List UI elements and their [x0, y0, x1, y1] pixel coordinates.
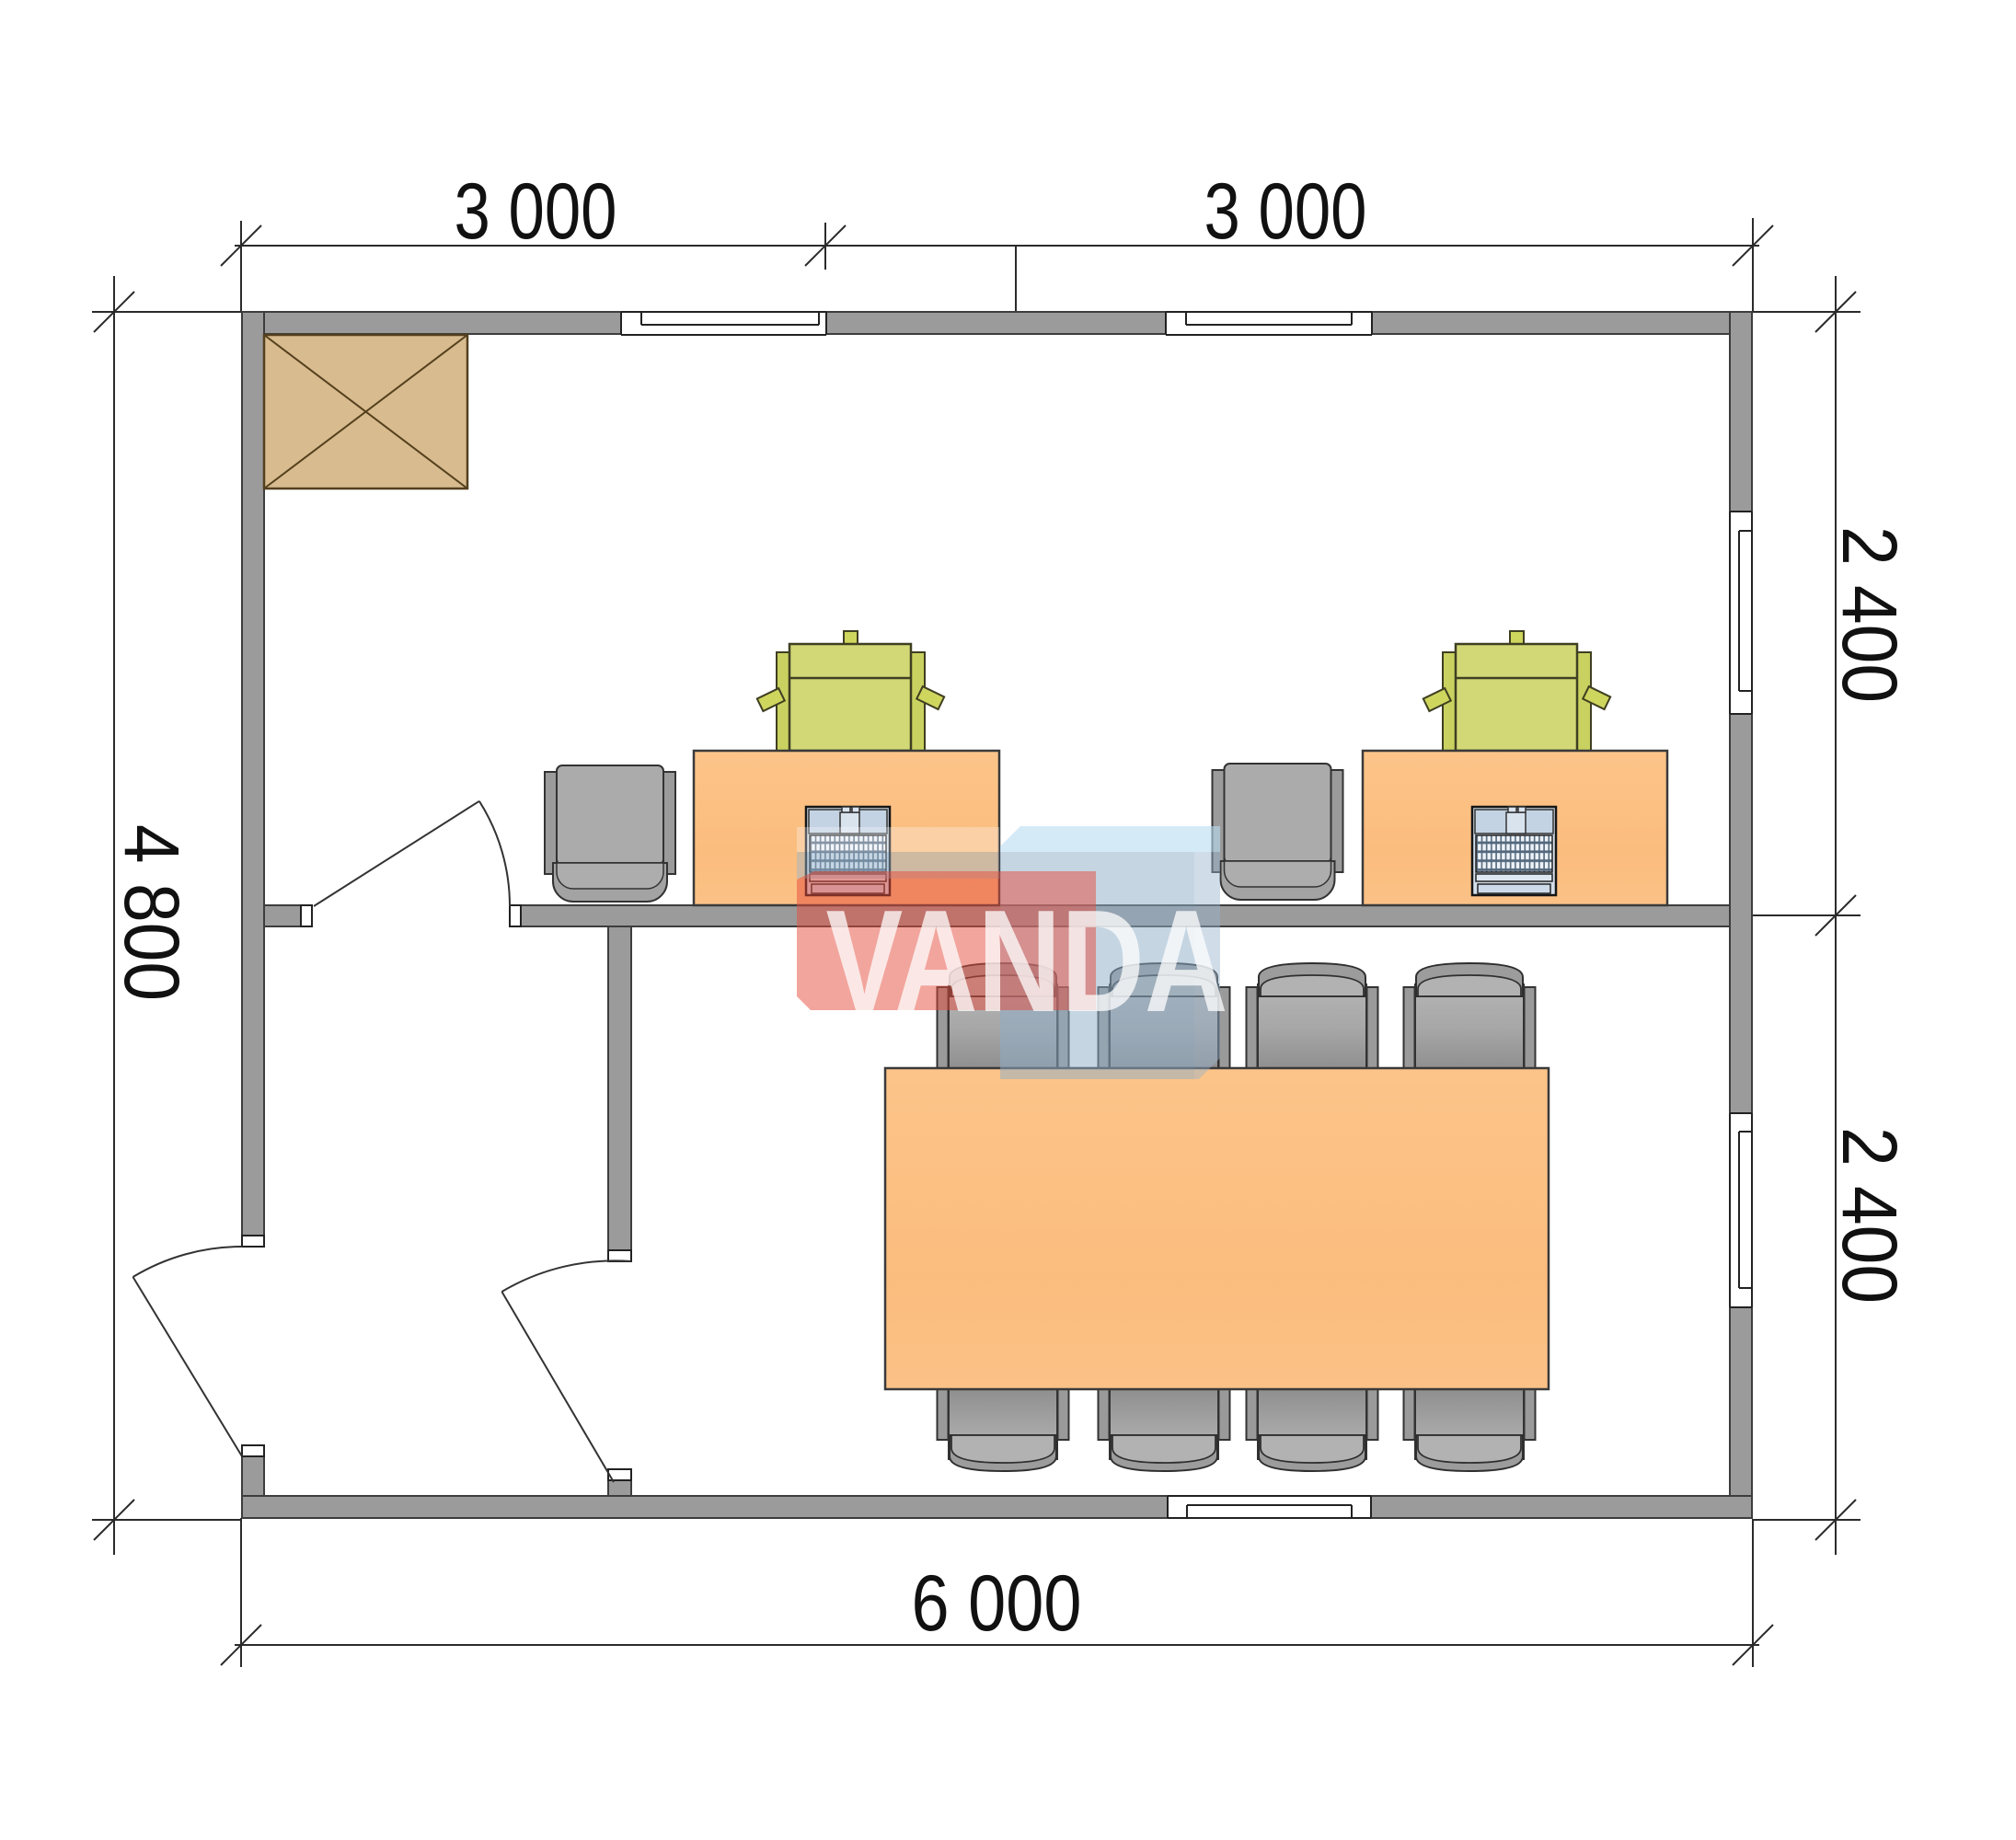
svg-text:3 000: 3 000	[455, 167, 617, 256]
svg-text:4 800: 4 800	[109, 824, 195, 1001]
svg-text:2 400: 2 400	[1826, 1127, 1913, 1304]
svg-text:6 000: 6 000	[912, 1559, 1082, 1648]
svg-text:3 000: 3 000	[1204, 167, 1367, 256]
svg-text:VANDA: VANDA	[826, 880, 1228, 1042]
svg-text:2 400: 2 400	[1826, 526, 1913, 703]
